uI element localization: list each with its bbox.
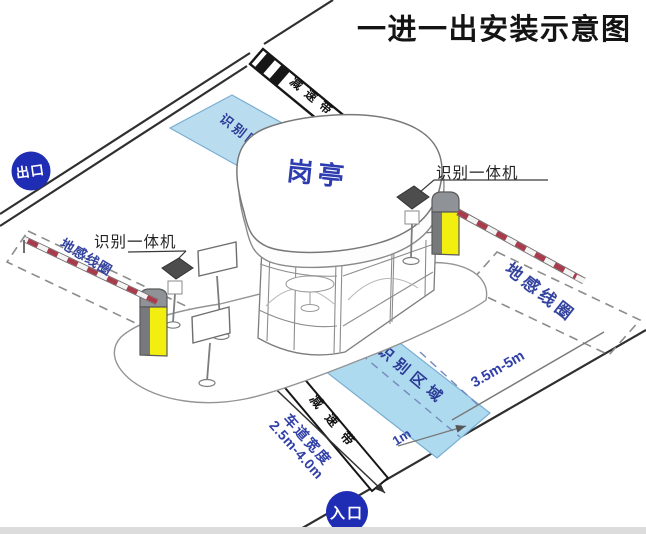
- entrance-badge-text: 入口: [330, 505, 364, 522]
- camera-right-base: [403, 258, 419, 265]
- camera-right-pole: [411, 224, 412, 258]
- road-edge-upper-continuation: [264, 0, 333, 44]
- barrier-arm-right-tip-cap: [576, 277, 584, 281]
- dimension-loop-distance-text: 3.5m-5m: [469, 348, 528, 391]
- dimension-loop-distance: 3.5m-5m: [452, 332, 604, 420]
- exit-badge: 出口: [12, 152, 51, 191]
- installation-diagram: 识别区域 识别区域 减速带 减速带 3.5m-5m 1m 车道宽度 2.5m-4…: [0, 0, 646, 534]
- barrier-machine-left-side: [140, 307, 150, 356]
- bottom-border-strip: [0, 527, 646, 534]
- barrier-machine-right-cap: [432, 192, 459, 212]
- camera-left-head-icon: [162, 258, 193, 279]
- camera-left-base: [166, 322, 180, 328]
- camera-left-label: 识别一体机: [94, 233, 177, 251]
- camera-right-label: 识别一体机: [436, 164, 519, 182]
- barrier-machine-right: [432, 192, 459, 255]
- sign-board-1-panel: [198, 242, 237, 276]
- page-title: 一进一出安装示意图: [357, 12, 632, 46]
- diagram-canvas: 识别区域 识别区域 减速带 减速带 3.5m-5m 1m 车道宽度 2.5m-4…: [0, 0, 646, 534]
- sign-board-2-base: [199, 380, 215, 387]
- camera-left-mount: [168, 281, 182, 294]
- barrier-machine-right-front: [442, 212, 459, 255]
- camera-left-callout: 识别一体机: [94, 233, 186, 259]
- barrier-machine-right-side: [432, 212, 442, 255]
- entrance-badge: 入口: [326, 491, 368, 533]
- camera-left-leader: [178, 251, 186, 259]
- barrier-machine-left-front: [150, 307, 167, 356]
- camera-left-leader-underline: [128, 251, 186, 252]
- camera-right-mount: [405, 211, 419, 224]
